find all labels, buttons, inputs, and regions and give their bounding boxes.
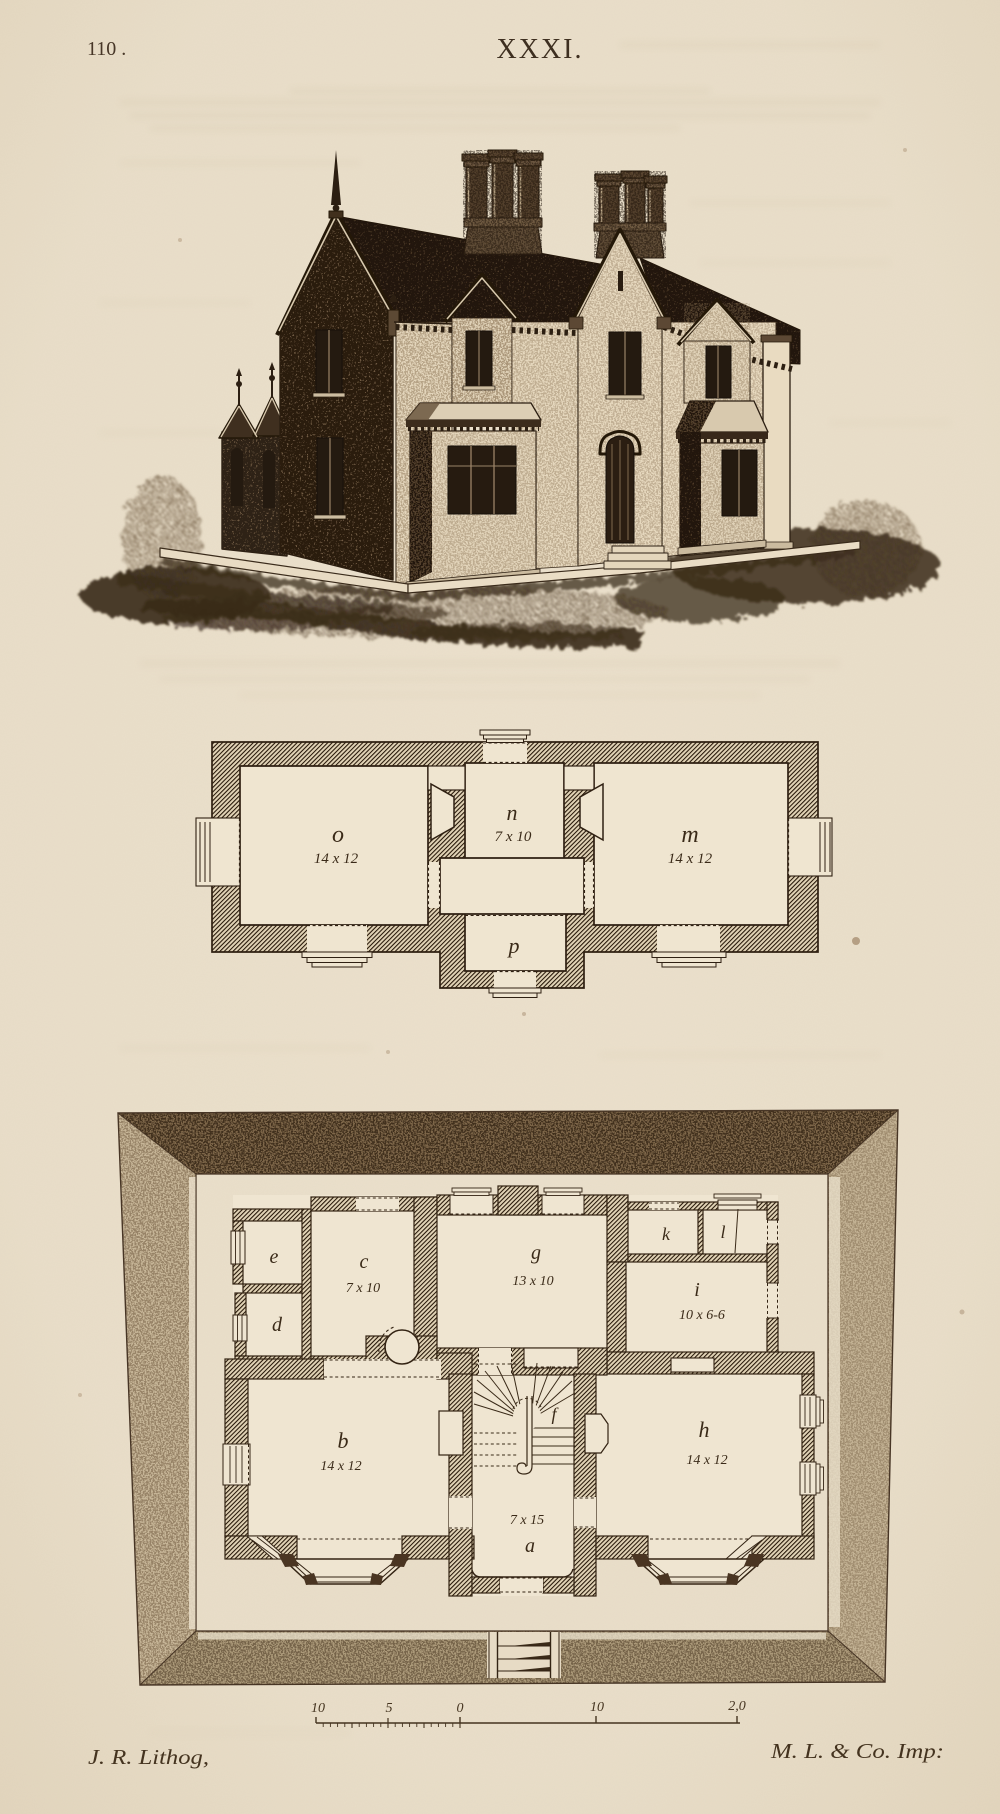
svg-text:g: g	[531, 1242, 541, 1264]
svg-text:14 x 12: 14 x 12	[668, 851, 713, 867]
svg-text:k: k	[662, 1224, 671, 1244]
svg-text:a: a	[525, 1535, 535, 1557]
svg-text:l: l	[720, 1222, 725, 1242]
svg-text:h: h	[699, 1417, 710, 1442]
svg-text:14 x 12: 14 x 12	[686, 1453, 727, 1468]
svg-text:p: p	[507, 933, 520, 958]
svg-text:b: b	[338, 1428, 349, 1453]
svg-text:10: 10	[590, 1700, 604, 1715]
svg-text:M. L. & Co. Imp:: M. L. & Co. Imp:	[770, 1739, 944, 1763]
svg-text:10 x 6-6: 10 x 6-6	[679, 1308, 725, 1323]
svg-text:e: e	[270, 1246, 279, 1268]
svg-text:7 x 15: 7 x 15	[510, 1513, 544, 1528]
svg-text:7 x 10: 7 x 10	[495, 829, 532, 845]
svg-text:14 x 12: 14 x 12	[314, 851, 359, 867]
svg-text:0: 0	[457, 1701, 464, 1716]
svg-text:c: c	[360, 1251, 369, 1273]
svg-text:J. R. Lithog,: J. R. Lithog,	[88, 1745, 209, 1769]
svg-text:10: 10	[311, 1701, 325, 1716]
svg-text:14 x 12: 14 x 12	[320, 1459, 361, 1474]
svg-text:n: n	[507, 800, 518, 825]
svg-text:XXXI.: XXXI.	[497, 34, 584, 65]
svg-text:o: o	[332, 822, 344, 848]
svg-text:13 x 10: 13 x 10	[512, 1274, 553, 1289]
svg-text:2,0: 2,0	[728, 1699, 746, 1714]
svg-text:i: i	[694, 1279, 700, 1301]
svg-text:110 .: 110 .	[87, 38, 126, 60]
svg-text:5: 5	[386, 1701, 393, 1716]
svg-text:d: d	[272, 1314, 283, 1336]
svg-text:7 x 10: 7 x 10	[346, 1281, 380, 1296]
svg-text:m: m	[681, 822, 698, 848]
